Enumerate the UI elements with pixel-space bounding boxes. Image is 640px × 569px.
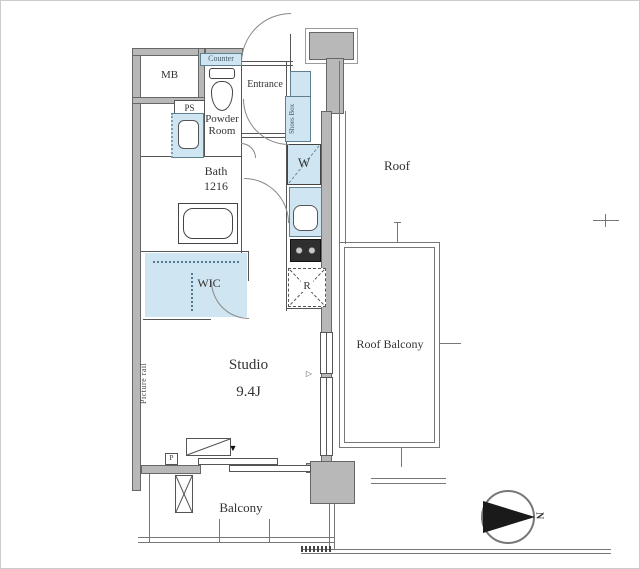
roof-balcony-tick-top — [397, 222, 398, 242]
roof-edge-tick-h — [593, 220, 619, 221]
balcony-rail-tick-1 — [219, 519, 220, 542]
kitchen-sink — [293, 205, 318, 231]
roof-label: Roof — [371, 159, 423, 174]
powder-room-label: Powder Room — [198, 113, 246, 138]
wic-hanger-rail — [153, 261, 239, 263]
studio-size-label: 9.4J — [196, 384, 301, 401]
balcony-rail-bottom-b — [138, 542, 334, 543]
pipe-space-label: PS — [174, 103, 205, 113]
bathtub-inner — [183, 208, 233, 239]
window-joint-marker: ▼ — [227, 443, 239, 453]
washroom-door-arc — [244, 178, 289, 223]
opening-pointer-marker: ▷ — [303, 370, 315, 379]
meter-box-label: MB — [141, 69, 198, 81]
drain-pipe-h-a — [301, 549, 611, 550]
wall-column-bottom — [310, 461, 355, 504]
fridge-label-text: R — [301, 280, 312, 292]
line-wic-bottom — [143, 319, 211, 320]
shoes-box-label: Shoes Box — [289, 98, 307, 140]
compass-north-label: N — [533, 509, 544, 523]
roof-balcony-tick-bottom — [401, 448, 402, 467]
counter-label: Counter — [200, 55, 242, 64]
studio-window-east-2-line — [326, 378, 327, 455]
roof-balcony-tick-right — [440, 343, 461, 344]
balcony-rail-left — [149, 474, 150, 542]
washer-label: W — [287, 156, 321, 171]
entrance-sill-b — [238, 65, 293, 66]
roof-boundary-b — [345, 111, 346, 244]
powder-room-door-arc — [241, 143, 256, 158]
roof-balcony-label: Roof Balcony — [346, 338, 434, 351]
roof-balcony-tick-top-cap — [394, 222, 401, 223]
fridge-label: R — [288, 280, 326, 292]
picture-rail-label: Picture rail — [140, 331, 152, 436]
studio-window-south-1 — [198, 458, 278, 465]
studio-label: Studio — [196, 357, 301, 374]
shoes-box-upper — [290, 71, 311, 97]
balcony-column-x — [175, 475, 193, 513]
drain-pipe-v-b — [334, 504, 335, 550]
entrance-label: Entrance — [239, 79, 291, 90]
toilet-bowl — [211, 81, 233, 111]
bath-size-label: 1216 — [189, 180, 243, 193]
balcony-label: Balcony — [204, 501, 278, 516]
pipe-shaft-label: P — [165, 455, 178, 463]
compass-needle — [483, 501, 535, 533]
roof-balcony-drain-b — [371, 483, 446, 484]
balcony-rail-tick-2 — [269, 519, 270, 542]
roof-edge-tick-v — [605, 214, 606, 227]
entrance-door-arc — [241, 13, 291, 63]
line-kitchen-end — [286, 308, 322, 309]
roof-boundary-a — [339, 61, 340, 244]
drain-pipe-v-a — [329, 504, 330, 550]
line-bath-bottom — [141, 251, 248, 252]
drain-pipe-h-b — [301, 553, 611, 554]
wall-bottom-left — [141, 465, 201, 474]
studio-counter-diagonal — [186, 438, 231, 456]
wall-column-stem — [326, 58, 344, 114]
studio-window-east-1-line — [326, 333, 327, 373]
toilet-tank — [209, 68, 235, 79]
roof-balcony-drain-a — [371, 478, 446, 479]
washbasin-bowl — [178, 120, 199, 149]
wall-column-top — [309, 32, 354, 60]
studio-window-south-2 — [229, 465, 311, 472]
line-wic-right — [248, 251, 249, 281]
balcony-rail-bottom-a — [138, 537, 334, 538]
entrance-inner-door-arc — [243, 99, 289, 145]
drain-grate — [301, 546, 331, 552]
bath-label: Bath — [189, 165, 243, 178]
floor-plan: MB PS Counter Powder Room Bath 1216 Entr… — [0, 0, 640, 569]
stove — [290, 239, 321, 262]
